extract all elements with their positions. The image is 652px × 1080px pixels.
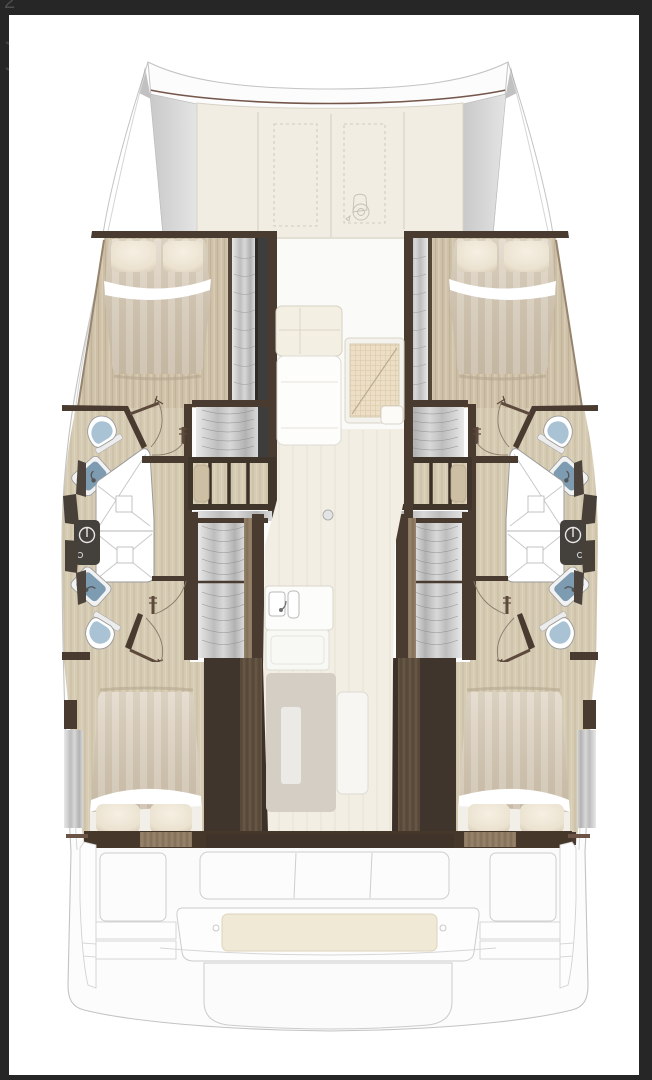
svg-text:2: 2 bbox=[4, 0, 15, 13]
